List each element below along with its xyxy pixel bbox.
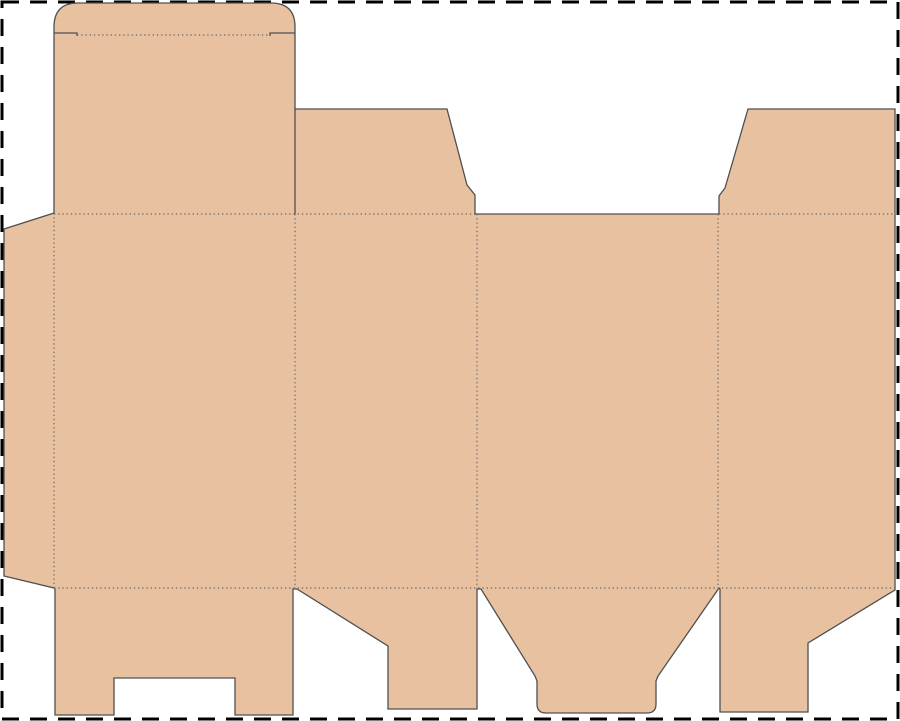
dieline-outline xyxy=(4,3,895,715)
dieline-canvas xyxy=(0,0,900,721)
dieline-artboard xyxy=(0,0,900,721)
